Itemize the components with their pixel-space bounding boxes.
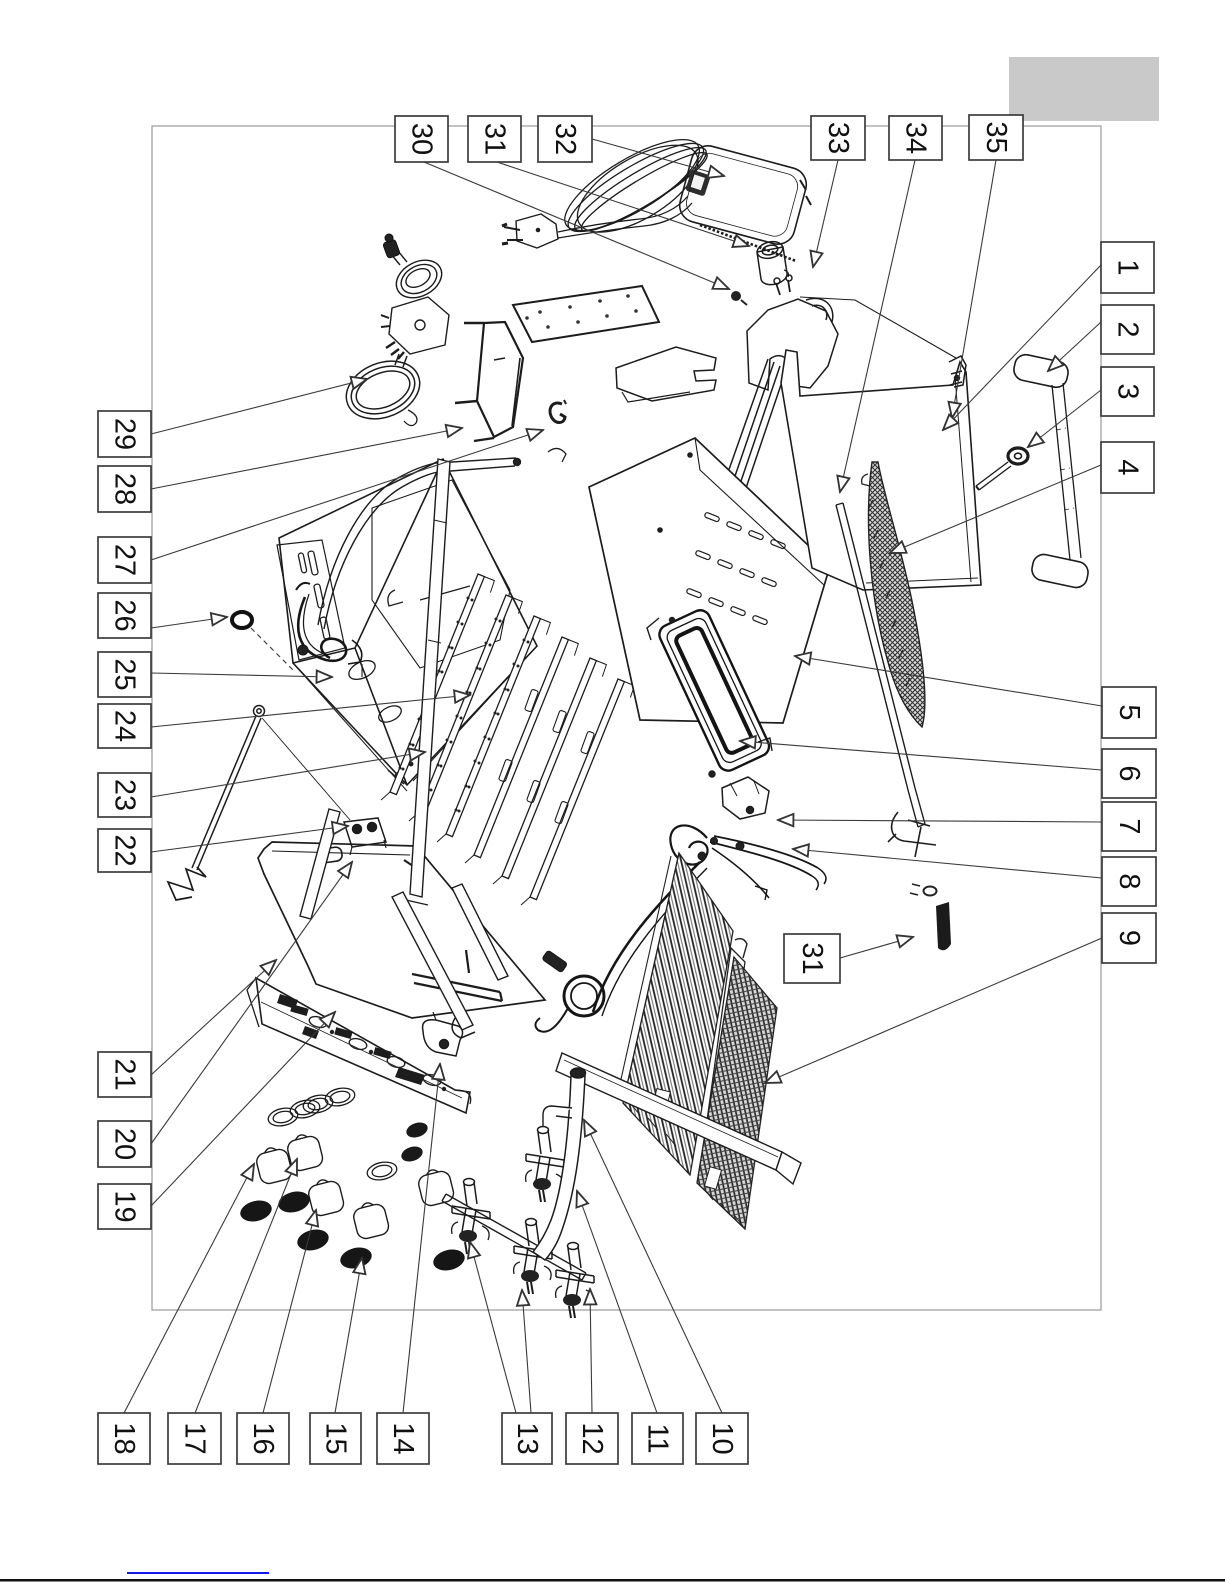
svg-text:11: 11 <box>642 1423 674 1453</box>
svg-text:31: 31 <box>796 942 828 974</box>
svg-text:28: 28 <box>109 473 141 505</box>
svg-text:25: 25 <box>109 658 141 690</box>
svg-text:6: 6 <box>1113 765 1145 781</box>
svg-text:20: 20 <box>109 1128 141 1160</box>
svg-text:26: 26 <box>109 599 141 631</box>
svg-text:12: 12 <box>576 1422 608 1454</box>
svg-text:1: 1 <box>1112 259 1144 275</box>
svg-text:9: 9 <box>1113 930 1145 946</box>
svg-text:29: 29 <box>109 418 141 450</box>
svg-text:31: 31 <box>479 123 511 155</box>
svg-text:8: 8 <box>1113 873 1145 889</box>
svg-text:13: 13 <box>511 1422 543 1454</box>
svg-text:3: 3 <box>1112 383 1144 399</box>
svg-text:10: 10 <box>706 1422 738 1454</box>
svg-text:2: 2 <box>1112 321 1144 337</box>
svg-text:35: 35 <box>980 121 1012 153</box>
svg-text:14: 14 <box>387 1422 419 1454</box>
svg-text:22: 22 <box>109 834 141 866</box>
svg-text:21: 21 <box>109 1058 141 1090</box>
svg-text:19: 19 <box>109 1190 141 1222</box>
svg-text:24: 24 <box>109 710 141 742</box>
svg-text:33: 33 <box>822 122 854 154</box>
svg-text:30: 30 <box>406 123 438 155</box>
svg-text:34: 34 <box>900 122 932 154</box>
svg-text:16: 16 <box>247 1422 279 1454</box>
svg-text:23: 23 <box>109 779 141 811</box>
svg-text:17: 17 <box>179 1422 211 1454</box>
svg-text:7: 7 <box>1113 818 1145 834</box>
svg-text:27: 27 <box>109 544 141 576</box>
svg-text:5: 5 <box>1113 704 1145 720</box>
svg-text:4: 4 <box>1112 459 1144 475</box>
svg-text:32: 32 <box>549 123 581 155</box>
svg-text:15: 15 <box>320 1422 352 1454</box>
svg-text:18: 18 <box>108 1422 140 1454</box>
